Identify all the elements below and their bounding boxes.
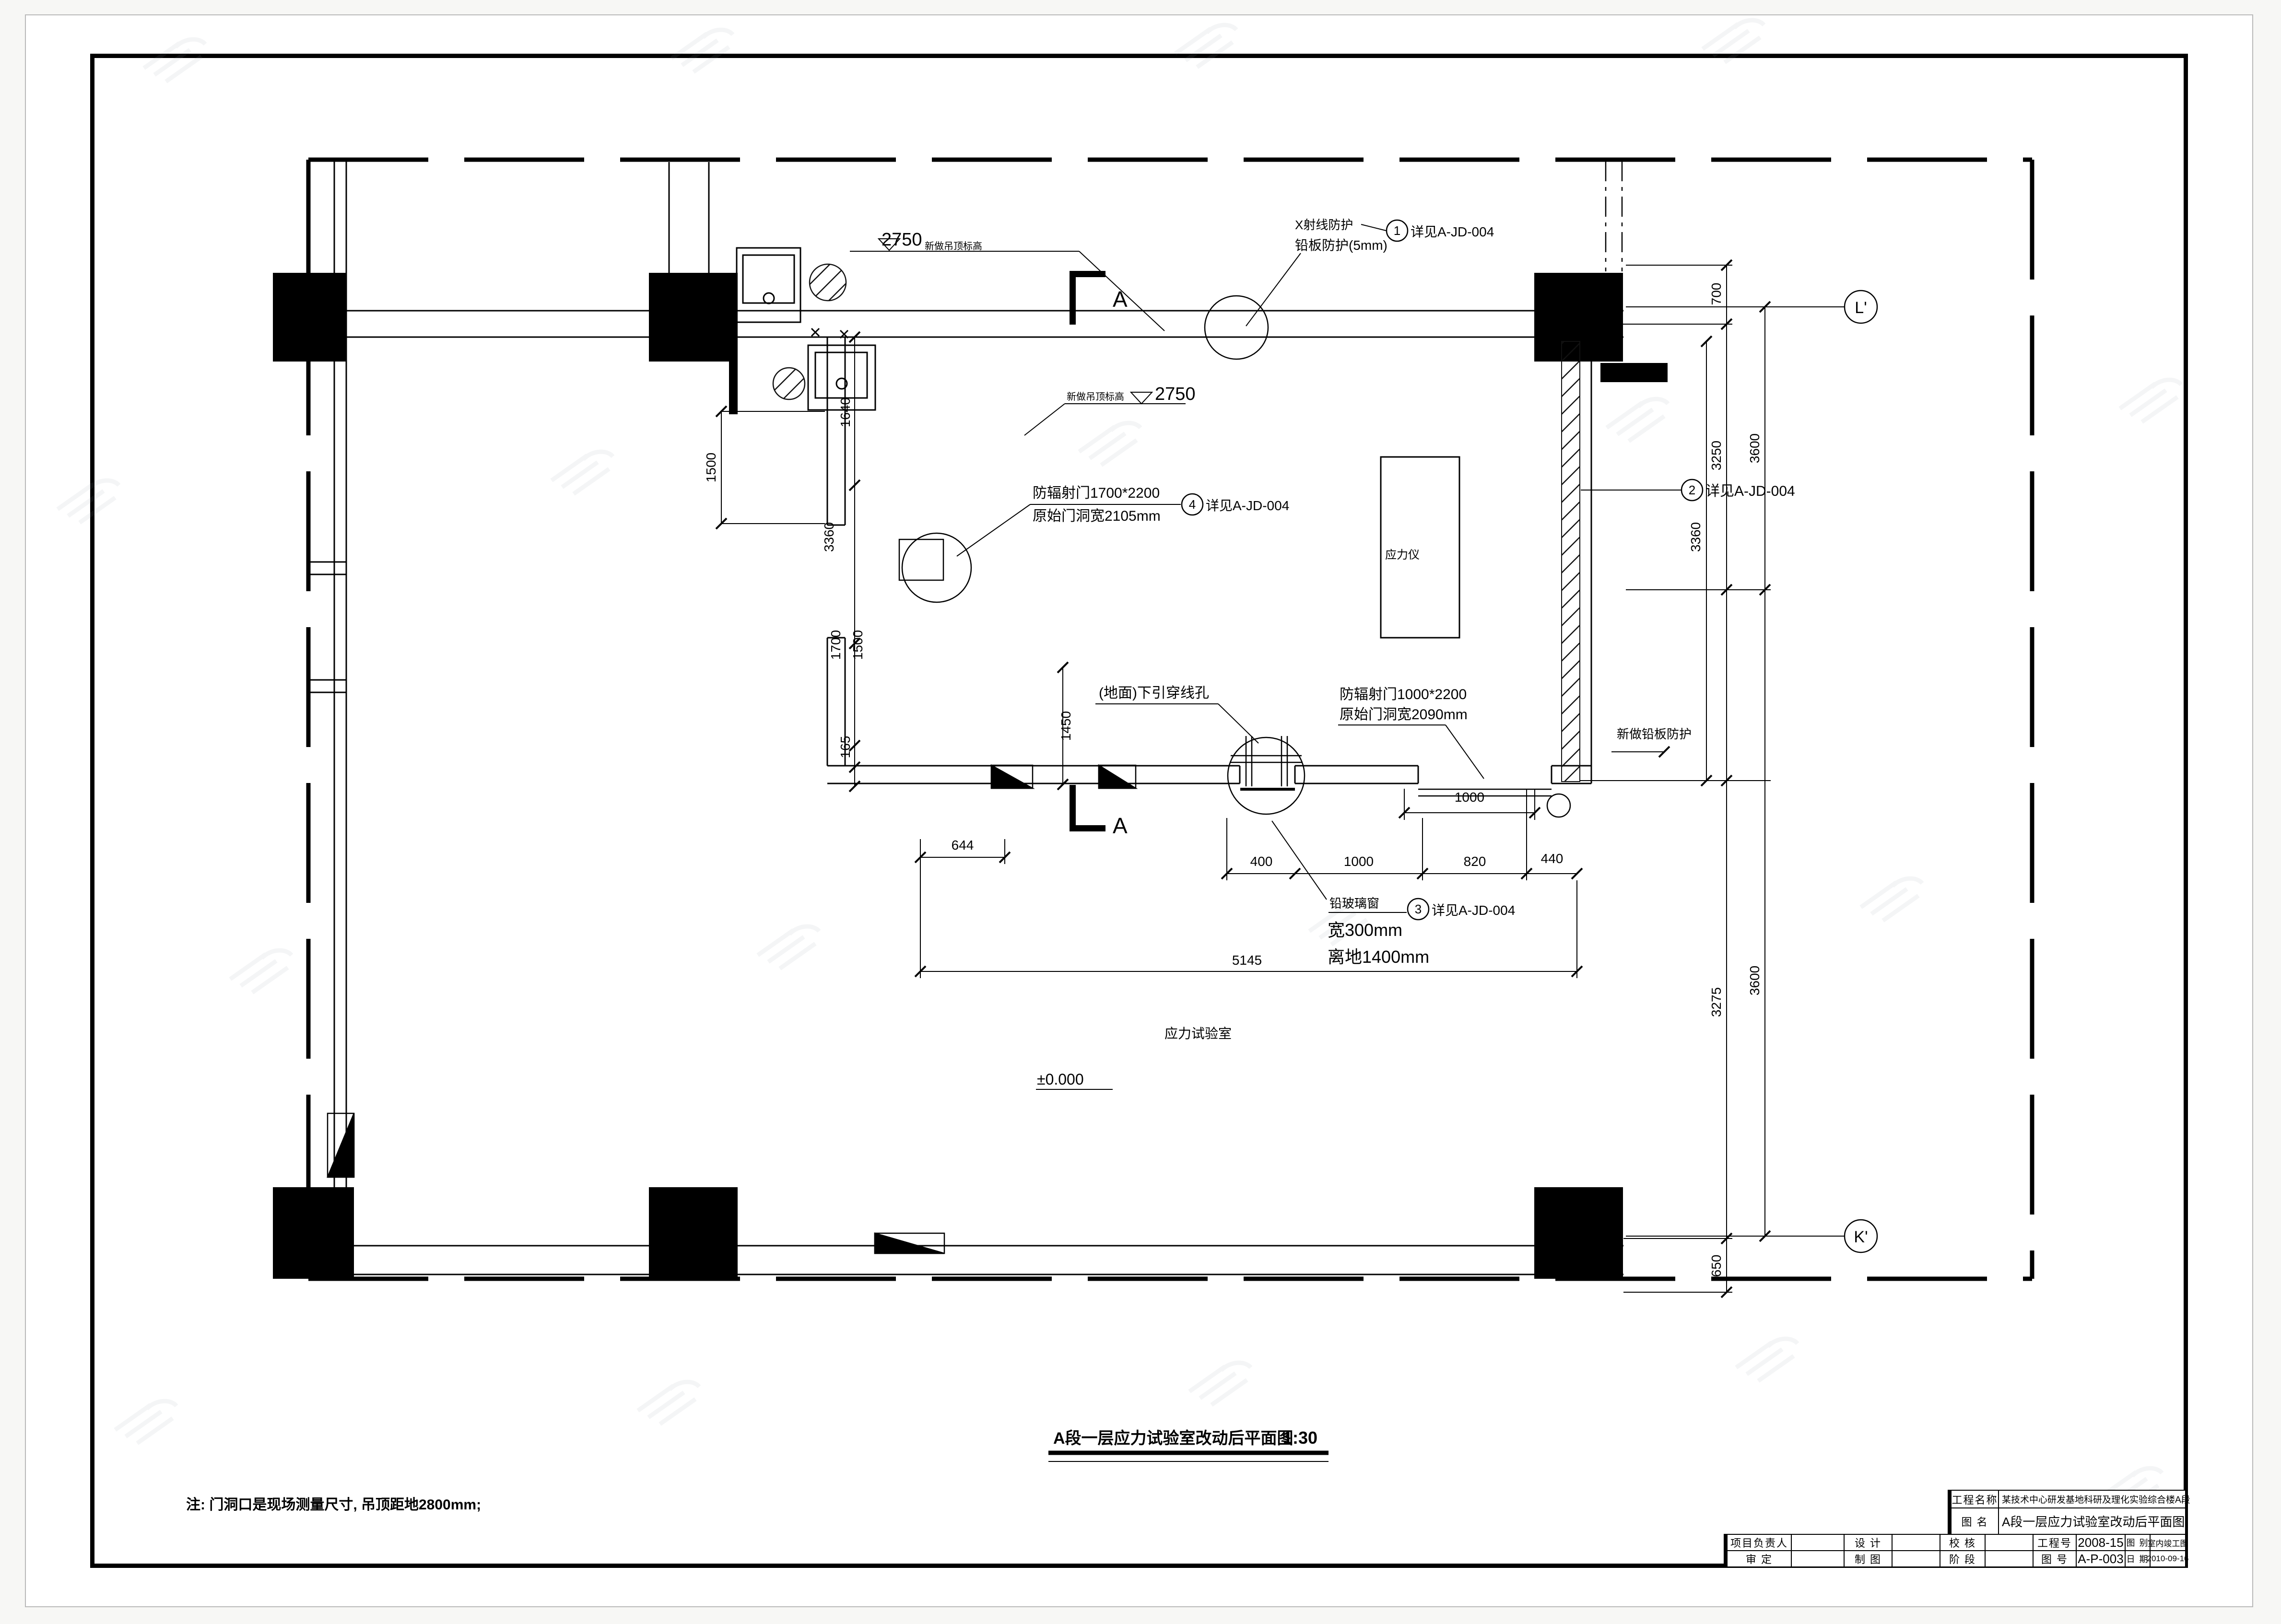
svg-text:X射线防护: X射线防护 <box>1295 218 1353 232</box>
svg-text:1000: 1000 <box>1344 854 1374 869</box>
field-value <box>1985 1534 2034 1551</box>
svg-text:644: 644 <box>952 838 974 853</box>
room-label: 应力试验室 <box>1164 1026 1232 1041</box>
dimension-texts: 644 400 1000 820 440 1000 5145 1500 1640… <box>704 283 1762 1277</box>
svg-text:原始门洞宽2105mm: 原始门洞宽2105mm <box>1033 508 1161 524</box>
elevation-label: 新做吊顶标高 <box>1067 391 1124 402</box>
exterior-boundary-wall <box>308 160 2032 1279</box>
south-wall <box>308 1246 1623 1274</box>
svg-text:新做铅板防护: 新做铅板防护 <box>1617 727 1692 741</box>
svg-text:3250: 3250 <box>1709 441 1724 470</box>
svg-text:1000: 1000 <box>1455 790 1484 805</box>
svg-text:650: 650 <box>1709 1255 1724 1277</box>
svg-text:(地面)下引穿线孔: (地面)下引穿线孔 <box>1099 685 1209 701</box>
svg-text:1: 1 <box>1394 223 1400 238</box>
svg-text:1500: 1500 <box>704 453 718 482</box>
general-note: 注: 门洞口是现场测量尺寸, 吊顶距地2800mm; <box>186 1497 481 1513</box>
equipment-label: 应力仪 <box>1385 549 1420 561</box>
field-label: 设 计 <box>1844 1534 1893 1551</box>
door-a-callout: 防辐射门1700*2200 原始门洞宽2105mm 4 详见A-JD-004 <box>957 485 1289 556</box>
svg-text:防辐射门1700*2200: 防辐射门1700*2200 <box>1033 485 1160 501</box>
lead-wall-label: 新做铅板防护 <box>1611 727 1692 757</box>
field-label: 工程号 <box>2033 1534 2077 1551</box>
svg-text:1500: 1500 <box>850 630 865 660</box>
svg-text:铅玻璃窗: 铅玻璃窗 <box>1329 896 1379 911</box>
svg-text:820: 820 <box>1464 854 1486 869</box>
svg-text:防辐射门1000*2200: 防辐射门1000*2200 <box>1340 687 1467 702</box>
field-value <box>1892 1550 1940 1567</box>
lead-glass-window-callout: 铅玻璃窗 宽300mm 离地1400mm 3 详见A-JD-004 <box>1272 821 1515 967</box>
field-label: 制 图 <box>1844 1550 1893 1567</box>
level-marker: ±0.000 <box>1037 1071 1084 1088</box>
detail-circles <box>902 296 1305 814</box>
field-value <box>1791 1534 1845 1551</box>
field-label: 审 定 <box>1727 1550 1792 1567</box>
svg-text:440: 440 <box>1541 851 1564 866</box>
elevation-value: 2750 <box>882 230 922 250</box>
svg-text:1640: 1640 <box>838 397 853 427</box>
field-label: 校 核 <box>1940 1534 1986 1551</box>
svg-text:165: 165 <box>838 736 853 759</box>
lead-protection-wall <box>1562 341 1580 782</box>
project-name-label: 工程名称 <box>1951 1490 1999 1508</box>
axis-lines <box>1606 161 1622 271</box>
svg-text:4: 4 <box>1189 497 1196 512</box>
svg-text:L': L' <box>1855 299 1867 317</box>
svg-text:详见A-JD-004: 详见A-JD-004 <box>1705 483 1795 499</box>
svg-text:3600: 3600 <box>1747 966 1762 995</box>
elevation-label: 新做吊顶标高 <box>925 241 982 252</box>
svg-text:A段一层应力试验室改动后平面图: A段一层应力试验室改动后平面图 <box>1053 1429 1293 1448</box>
drawing-title: A段一层应力试验室改动后平面图 1:30 <box>1048 1428 1329 1461</box>
door-symbols <box>328 539 1570 1253</box>
section-marker-top: A <box>1070 271 1128 325</box>
svg-text:原始门洞宽2090mm: 原始门洞宽2090mm <box>1340 707 1468 723</box>
svg-text:400: 400 <box>1250 854 1273 869</box>
svg-text:详见A-JD-004: 详见A-JD-004 <box>1206 498 1289 513</box>
detail-ref-2: 2 详见A-JD-004 <box>1581 479 1795 501</box>
floor-plan: 应力仪 <box>0 0 2281 1624</box>
field-label: 阶 段 <box>1940 1550 1986 1567</box>
svg-text:A: A <box>1113 813 1128 838</box>
xray-callout: X射线防护 铅板防护(5mm) 1 详见A-JD-004 <box>1246 218 1494 326</box>
field-value: 2010-09-16 <box>2150 1550 2186 1567</box>
svg-text:铅板防护(5mm): 铅板防护(5mm) <box>1295 238 1387 253</box>
field-value <box>1985 1550 2034 1567</box>
field-value: 2008-15 <box>2076 1534 2126 1551</box>
svg-text:3360: 3360 <box>822 522 836 552</box>
svg-text:2: 2 <box>1689 483 1695 497</box>
svg-text:离地1400mm: 离地1400mm <box>1328 947 1429 967</box>
grid-bubble-K: K' <box>1845 1220 1877 1252</box>
floor-drain-icon <box>773 264 846 399</box>
section-marker-bottom: A <box>1070 785 1128 838</box>
svg-text:3275: 3275 <box>1709 987 1724 1017</box>
grid-bubble-L: L' <box>1845 291 1877 323</box>
dimension-lines <box>716 260 1844 1297</box>
floor-hole-callout: (地面)下引穿线孔 <box>1095 685 1258 743</box>
stress-instrument-outline <box>1381 457 1459 638</box>
project-name-value: 某技术中心研发基地科研及理化实验综合楼A段 <box>1998 1490 2186 1508</box>
field-label: 项目负责人 <box>1727 1534 1792 1551</box>
svg-text:5145: 5145 <box>1232 953 1262 968</box>
field-value <box>1892 1534 1940 1551</box>
field-value: 室内竣工图 <box>2150 1534 2186 1551</box>
svg-text:详见A-JD-004: 详见A-JD-004 <box>1411 224 1494 239</box>
svg-text:1700: 1700 <box>828 630 843 660</box>
test-room-walls <box>827 337 1591 783</box>
door-b-callout: 防辐射门1000*2200 原始门洞宽2090mm <box>1338 687 1484 779</box>
svg-text:3: 3 <box>1415 902 1422 916</box>
svg-text:宽300mm: 宽300mm <box>1328 920 1402 940</box>
svg-text:1:30: 1:30 <box>1283 1428 1317 1448</box>
sheet-name-label: 图 名 <box>1951 1507 1999 1535</box>
field-label: 图 别 <box>2125 1534 2151 1551</box>
field-label: 图 号 <box>2033 1550 2077 1567</box>
svg-text:K': K' <box>1854 1228 1868 1246</box>
field-value: A-P-003 <box>2076 1550 2126 1567</box>
svg-text:700: 700 <box>1709 283 1724 305</box>
svg-text:A: A <box>1113 287 1128 312</box>
structural-columns <box>273 273 1668 1279</box>
svg-text:3360: 3360 <box>1688 522 1703 552</box>
svg-text:详见A-JD-004: 详见A-JD-004 <box>1432 903 1515 918</box>
sheet-name-value: A段一层应力试验室改动后平面图 <box>1998 1507 2186 1535</box>
elevation-value: 2750 <box>1155 384 1196 404</box>
svg-text:3600: 3600 <box>1747 433 1762 463</box>
svg-text:1450: 1450 <box>1058 711 1073 741</box>
ceiling-elevation-marker <box>850 239 1164 331</box>
field-value <box>1791 1550 1845 1567</box>
